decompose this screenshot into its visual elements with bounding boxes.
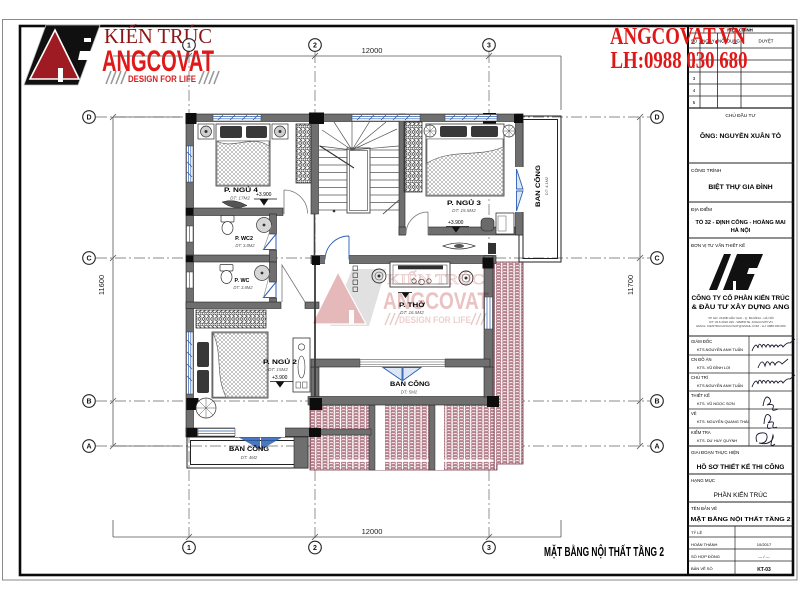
svg-text:D: D (86, 115, 91, 122)
svg-text:CHỦ ĐẦU TƯ: CHỦ ĐẦU TƯ (725, 112, 755, 119)
svg-text:DESIGN FOR LIFE: DESIGN FOR LIFE (128, 74, 196, 85)
svg-text:2: 2 (313, 43, 317, 50)
svg-text:ANGCOVAT.VN: ANGCOVAT.VN (610, 24, 747, 50)
svg-text:KIẾN TRÚC: KIẾN TRÚC (387, 271, 484, 288)
svg-text:A: A (86, 444, 91, 451)
svg-text:DESIGN FOR LIFE: DESIGN FOR LIFE (399, 315, 471, 325)
svg-text:ANGCOVAT: ANGCOVAT (383, 288, 489, 315)
svg-text:12000: 12000 (362, 527, 383, 536)
svg-text:SỐ HỢP ĐỒNG: SỐ HỢP ĐỒNG (691, 554, 720, 559)
svg-text:DT: 15.5M2: DT: 15.5M2 (452, 208, 476, 213)
svg-text:P. WC: P. WC (235, 278, 250, 284)
svg-text:KTS. DƯ HUY QUỲNH: KTS. DƯ HUY QUỲNH (697, 438, 737, 443)
svg-text:KTS. VŨ NGỌC SƠN: KTS. VŨ NGỌC SƠN (697, 401, 735, 406)
svg-text:ĐỊA ĐIỂM: ĐỊA ĐIỂM (691, 206, 712, 213)
svg-text:A: A (654, 444, 659, 451)
svg-text:C: C (86, 256, 91, 263)
svg-text:LH:0988 030 680: LH:0988 030 680 (611, 48, 748, 74)
svg-text:KIỂM TRA: KIỂM TRA (691, 430, 711, 435)
svg-text:P. NGỦ 2: P. NGỦ 2 (263, 359, 298, 366)
svg-text:BẢN VẼ SỐ: BẢN VẼ SỐ (691, 566, 713, 571)
svg-text:ÔNG: NGUYỄN XUÂN TỎ: ÔNG: NGUYỄN XUÂN TỎ (700, 131, 781, 140)
svg-text:TỶ LỆ: TỶ LỆ (691, 530, 702, 535)
svg-text:1: 1 (187, 545, 191, 552)
svg-text:HÀ NỘI: HÀ NỘI (731, 226, 751, 234)
svg-text:KTS.NGUYỄN ANH TUẤN: KTS.NGUYỄN ANH TUẤN (697, 347, 743, 352)
svg-text:3: 3 (487, 43, 491, 50)
svg-text:BIỆT THỰ GIA ĐÌNH: BIỆT THỰ GIA ĐÌNH (708, 182, 772, 191)
svg-text:VẼ: VẼ (691, 411, 697, 416)
svg-text:THIẾT KẾ: THIẾT KẾ (691, 393, 710, 398)
svg-text:DT: 4M2: DT: 4M2 (241, 455, 258, 460)
svg-text:CÔNG TRÌNH: CÔNG TRÌNH (691, 167, 722, 174)
svg-text:EMAIL: KIENTRUCANGCOVAT@GMAIL.: EMAIL: KIENTRUCANGCOVAT@GMAIL.COM - LH: … (696, 324, 785, 328)
svg-text:TỔ 32 - ĐỊNH CÔNG - HOÀNG MAI: TỔ 32 - ĐỊNH CÔNG - HOÀNG MAI (695, 218, 786, 226)
svg-text:ĐƠN VỊ TƯ VẤN THIẾT KẾ: ĐƠN VỊ TƯ VẤN THIẾT KẾ (691, 243, 745, 248)
svg-text:10/2017: 10/2017 (757, 542, 772, 547)
svg-text:P. NGỦ 4: P. NGỦ 4 (224, 187, 259, 194)
svg-text:11600: 11600 (97, 275, 106, 295)
svg-text:MẶT BẰNG NỘI THẤT TẦNG 2: MẶT BẰNG NỘI THẤT TẦNG 2 (544, 544, 664, 559)
svg-text:11700: 11700 (626, 275, 635, 295)
svg-text:DT: 17M2: DT: 17M2 (230, 196, 250, 201)
svg-text:P. WC2: P. WC2 (235, 236, 253, 242)
svg-text:CN ĐỒ ÁN: CN ĐỒ ÁN (691, 357, 711, 362)
svg-text:B: B (654, 399, 659, 406)
svg-text:MẶT BẰNG NỘI THẤT TẦNG 2: MẶT BẰNG NỘI THẤT TẦNG 2 (691, 515, 792, 523)
svg-text:BAN CÔNG: BAN CÔNG (229, 445, 269, 453)
svg-text:BAN CÔNG: BAN CÔNG (390, 380, 430, 388)
svg-text:KT-03: KT-03 (757, 567, 771, 573)
svg-text:D: D (654, 115, 659, 122)
svg-text:+3.900: +3.900 (256, 192, 272, 198)
svg-text:+3.900: +3.900 (448, 220, 464, 226)
svg-text:DT: 3.8M2: DT: 3.8M2 (233, 285, 253, 290)
svg-text:DT: 4.1M2: DT: 4.1M2 (544, 176, 549, 195)
svg-text:TÊN BẢN VẼ: TÊN BẢN VẼ (691, 506, 717, 511)
svg-text:DT: 15M2: DT: 15M2 (268, 367, 288, 372)
svg-text:GIÁM ĐỐC: GIÁM ĐỐC (691, 339, 712, 344)
svg-text:KTS. NGUYỄN QUANG THÁI: KTS. NGUYỄN QUANG THÁI (697, 419, 749, 424)
svg-text:2: 2 (313, 545, 317, 552)
svg-text:GIAI ĐOẠN THỰC HIỆN: GIAI ĐOẠN THỰC HIỆN (691, 450, 739, 455)
svg-text:KTS. VŨ ĐÌNH LỢI: KTS. VŨ ĐÌNH LỢI (697, 365, 730, 370)
svg-text:12000: 12000 (362, 46, 383, 55)
svg-text:DT: 5M2: DT: 5M2 (401, 390, 418, 395)
svg-text:--- / ---: --- / --- (758, 554, 770, 559)
svg-text:+3.900: +3.900 (272, 375, 288, 381)
svg-text:HẠNG MỤC: HẠNG MỤC (691, 478, 715, 483)
svg-text:1: 1 (187, 43, 191, 50)
svg-text:DUYỆT: DUYỆT (759, 39, 774, 44)
svg-text:BAN CÔNG: BAN CÔNG (534, 165, 542, 207)
svg-text:DT: 3.8M2: DT: 3.8M2 (235, 243, 255, 248)
svg-text:B: B (86, 399, 91, 406)
svg-text:3: 3 (487, 545, 491, 552)
svg-text:KTS.NGUYỄN ANH TUẤN: KTS.NGUYỄN ANH TUẤN (697, 383, 743, 388)
svg-text:P. NGỦ 3: P. NGỦ 3 (447, 200, 482, 207)
svg-text:C: C (654, 256, 659, 263)
svg-text:CHỦ TRÌ: CHỦ TRÌ (691, 375, 708, 380)
svg-text:HOÀN THÀNH: HOÀN THÀNH (691, 542, 717, 547)
